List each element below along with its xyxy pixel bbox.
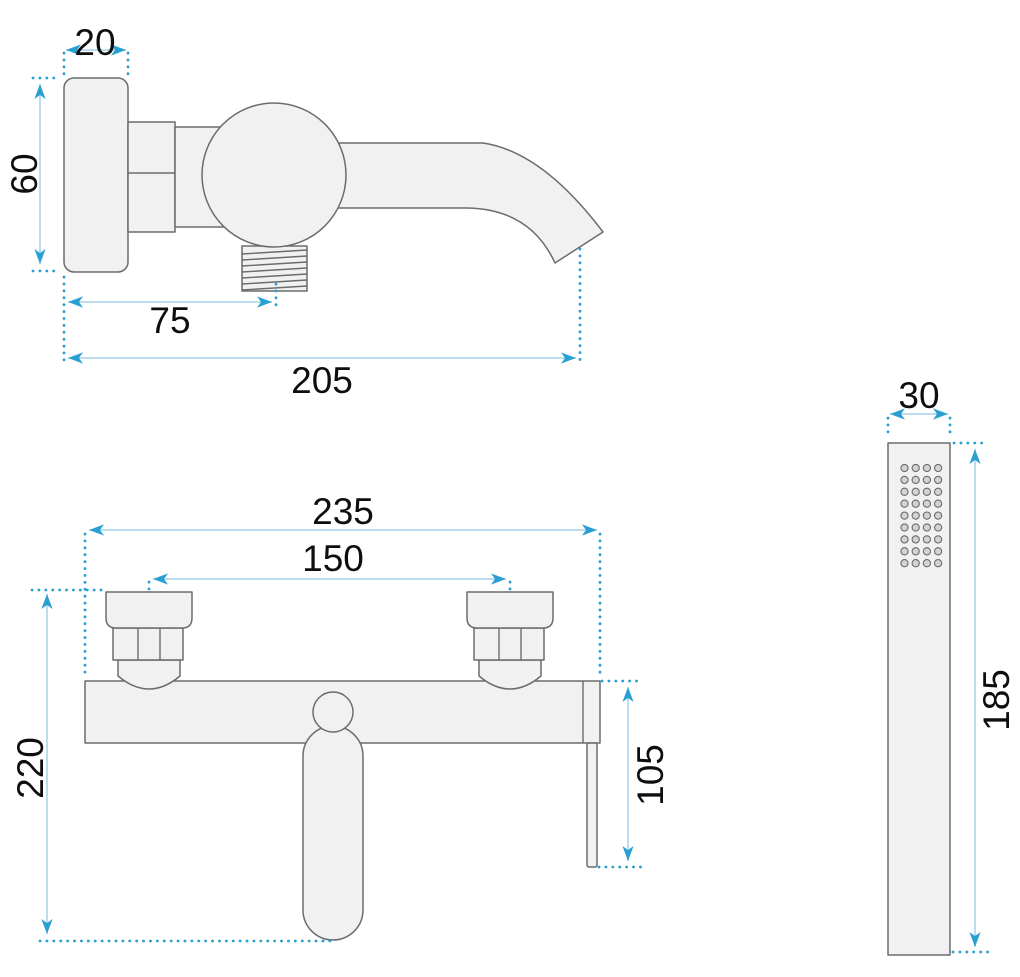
spray-nozzle-dot bbox=[923, 536, 930, 543]
dim-label-spout-reach: 205 bbox=[291, 360, 353, 401]
dim-label-lever-drop: 105 bbox=[630, 744, 671, 806]
hand-shower-view: 30 185 bbox=[888, 375, 1017, 955]
spray-nozzle-dot bbox=[901, 548, 908, 555]
right-connector-nut bbox=[474, 628, 544, 660]
left-wall-connector bbox=[106, 592, 192, 689]
spray-nozzle-dot bbox=[901, 524, 908, 531]
spray-nozzle-dot bbox=[923, 512, 930, 519]
spray-nozzle-dot bbox=[901, 536, 908, 543]
dim-lever-drop: 105 bbox=[599, 681, 671, 867]
spray-nozzle-dot bbox=[935, 536, 942, 543]
spray-nozzle-dot bbox=[901, 488, 908, 495]
faucet-dimension-drawing: 20 60 75 205 bbox=[0, 0, 1020, 977]
spray-nozzle-dot bbox=[912, 476, 919, 483]
spray-nozzle-dot bbox=[935, 548, 942, 555]
hand-shower-body bbox=[888, 443, 950, 955]
dim-label-shower-width: 30 bbox=[898, 375, 939, 416]
spray-nozzle-dot bbox=[923, 500, 930, 507]
mixer-ball-housing bbox=[202, 103, 346, 247]
dim-plate-height: 60 bbox=[4, 78, 60, 271]
spray-nozzle-dot bbox=[901, 476, 908, 483]
lever-rod bbox=[587, 743, 597, 867]
dim-label-outlet-offset: 75 bbox=[149, 300, 190, 341]
spray-nozzle-dot bbox=[935, 524, 942, 531]
dim-label-overall-width: 235 bbox=[312, 491, 374, 532]
spray-nozzle-dot bbox=[935, 560, 942, 567]
dim-shower-length: 185 bbox=[953, 443, 1017, 952]
spray-nozzle-dot bbox=[912, 464, 919, 471]
spray-nozzle-dot bbox=[935, 476, 942, 483]
spray-nozzle-dot bbox=[935, 488, 942, 495]
spray-nozzle-dot bbox=[912, 536, 919, 543]
wall-plate bbox=[64, 78, 128, 272]
left-connector-nut bbox=[113, 628, 183, 660]
spout bbox=[320, 143, 603, 263]
dim-label-connection-centers: 150 bbox=[302, 538, 364, 579]
spray-nozzle-dot bbox=[912, 548, 919, 555]
spray-nozzle-dot bbox=[923, 476, 930, 483]
right-connector-cap bbox=[467, 592, 553, 628]
spray-nozzle-dot bbox=[923, 560, 930, 567]
dim-label-plate-depth: 20 bbox=[74, 22, 115, 63]
spray-nozzle-dot bbox=[923, 548, 930, 555]
side-view: 20 60 75 205 bbox=[4, 22, 603, 401]
left-connector-cap bbox=[106, 592, 192, 628]
spray-nozzle-dot bbox=[901, 464, 908, 471]
thread-connector bbox=[242, 246, 307, 291]
spray-nozzle-dot bbox=[912, 512, 919, 519]
dim-shower-width: 30 bbox=[888, 375, 950, 438]
dim-label-plate-height: 60 bbox=[4, 153, 45, 194]
diverter-knob bbox=[313, 692, 353, 732]
right-wall-connector bbox=[467, 592, 553, 689]
spray-nozzle-dot bbox=[923, 488, 930, 495]
dim-label-shower-length: 185 bbox=[976, 669, 1017, 731]
spray-nozzle-dot bbox=[935, 500, 942, 507]
dim-connection-centers: 150 bbox=[149, 538, 510, 592]
mount-block-rear bbox=[128, 122, 175, 232]
spray-nozzle-dot bbox=[901, 512, 908, 519]
spray-nozzle-dot bbox=[935, 512, 942, 519]
front-view: 235 150 220 105 bbox=[10, 491, 671, 941]
spray-nozzle-dot bbox=[935, 464, 942, 471]
spray-nozzle-dot bbox=[912, 524, 919, 531]
diverter-handle bbox=[303, 726, 363, 940]
spray-nozzle-dot bbox=[912, 560, 919, 567]
spray-nozzle-dot bbox=[912, 500, 919, 507]
spray-nozzle-dot bbox=[901, 500, 908, 507]
dim-spout-reach: 205 bbox=[68, 249, 580, 401]
spray-nozzle-dot bbox=[901, 560, 908, 567]
spray-nozzle-dot bbox=[912, 488, 919, 495]
dim-label-overall-height: 220 bbox=[10, 737, 51, 799]
dim-outlet-offset: 75 bbox=[68, 284, 276, 341]
spray-nozzle-dot bbox=[923, 524, 930, 531]
spray-nozzle-dot bbox=[923, 464, 930, 471]
technical-drawing-page: 20 60 75 205 bbox=[0, 0, 1020, 977]
